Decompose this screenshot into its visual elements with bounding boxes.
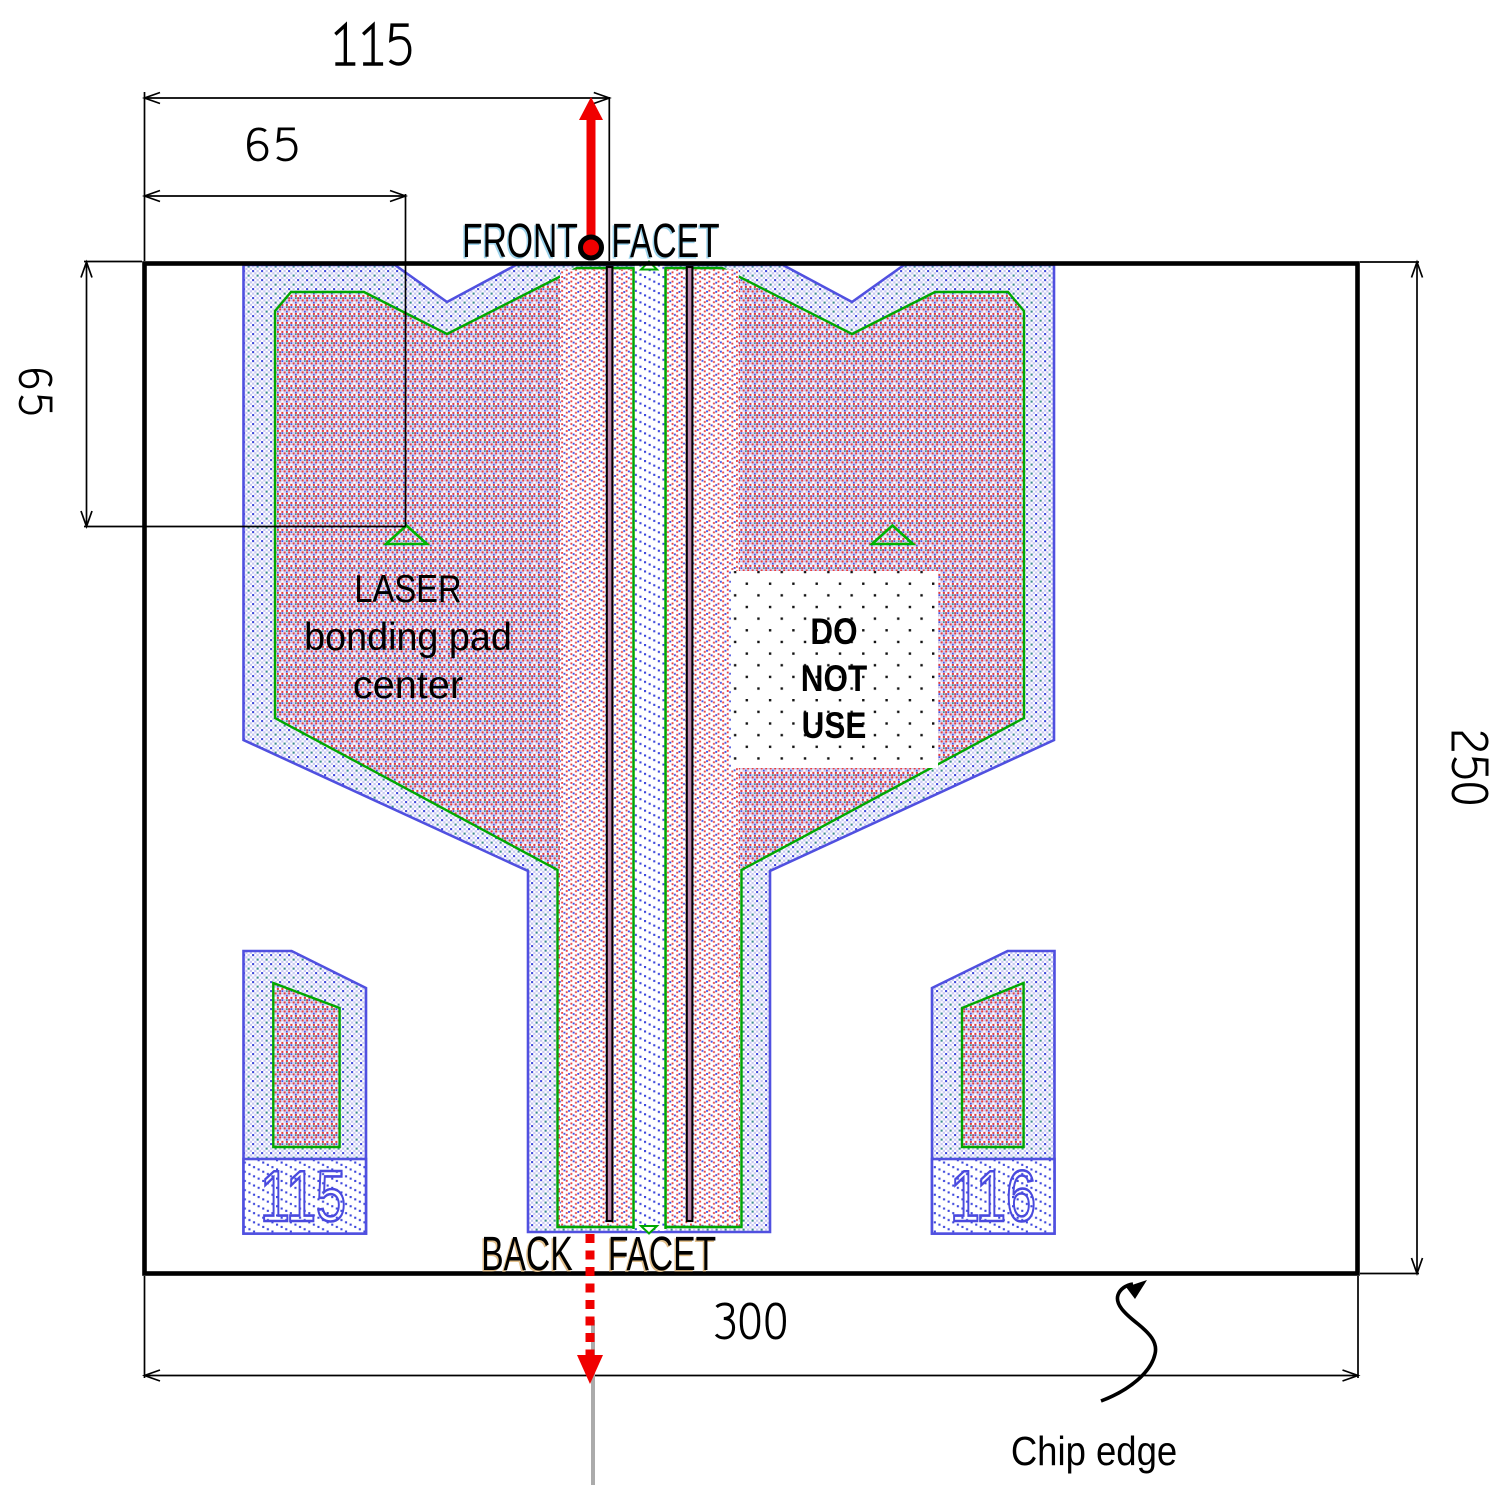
svg-text:116: 116: [950, 1157, 1036, 1237]
svg-text:FRONT: FRONT: [462, 213, 578, 267]
svg-text:Chip edge: Chip edge: [1011, 1429, 1177, 1474]
svg-text:bonding pad: bonding pad: [304, 617, 512, 659]
svg-text:BACK: BACK: [481, 1226, 573, 1280]
svg-text:FACET: FACET: [611, 213, 719, 267]
svg-text:center: center: [353, 665, 463, 707]
svg-text:DO: DO: [810, 612, 857, 653]
svg-text:FACET: FACET: [608, 1226, 716, 1280]
svg-text:LASER: LASER: [354, 568, 461, 611]
svg-text:NOT: NOT: [801, 659, 867, 700]
svg-text:USE: USE: [802, 706, 867, 747]
svg-text:115: 115: [260, 1157, 346, 1237]
